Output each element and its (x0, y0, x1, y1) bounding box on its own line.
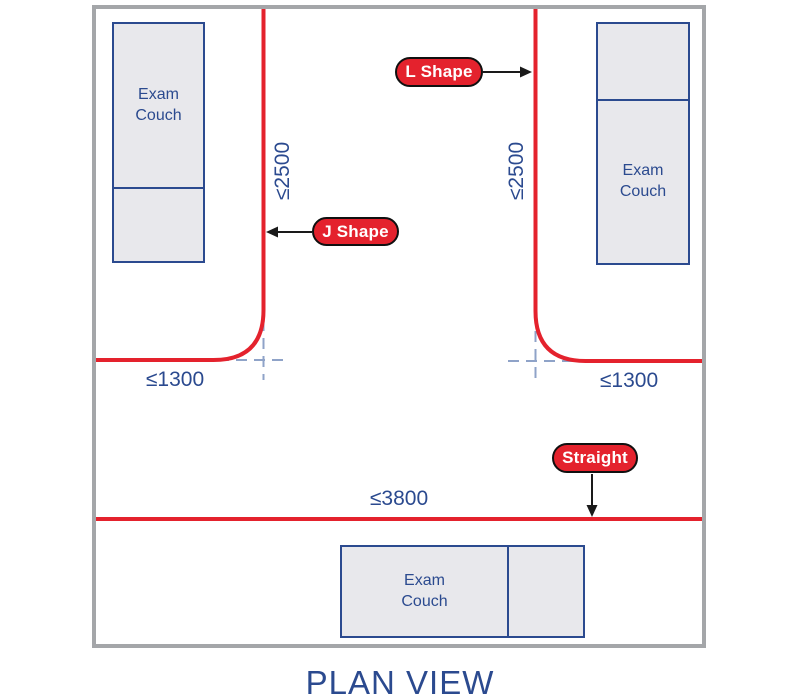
straight-length-dimension: ≤3800 (349, 487, 449, 511)
l-shape-callout: L Shape (395, 57, 483, 87)
l-shape-vertical-dimension: ≤2500 (505, 111, 529, 231)
j-shape-vertical-dimension: ≤2500 (271, 111, 295, 231)
couch-section-divider (507, 547, 509, 636)
exam-couch-label: Exam Couch (342, 547, 507, 636)
page-title: PLAN VIEW (0, 664, 800, 700)
l-shape-arrowhead-icon (520, 67, 532, 78)
j-shape-callout: J Shape (312, 217, 399, 246)
straight-callout-label: Straight (562, 448, 628, 468)
exam-couch-bottom: Exam Couch (340, 545, 585, 638)
curtain-track-plan-view: Exam Couch Exam Couch Exam Couch L Shape… (0, 0, 800, 700)
exam-couch-label: Exam Couch (598, 101, 688, 263)
exam-couch-top-right: Exam Couch (596, 22, 690, 265)
l-shape-callout-label: L Shape (405, 62, 472, 82)
l-shape-horizontal-dimension: ≤1300 (579, 369, 679, 393)
exam-couch-top-left: Exam Couch (112, 22, 205, 263)
j-shape-callout-label: J Shape (322, 222, 389, 242)
straight-arrowhead-icon (587, 505, 598, 517)
straight-callout: Straight (552, 443, 638, 473)
exam-couch-label: Exam Couch (114, 24, 203, 187)
j-shape-horizontal-dimension: ≤1300 (125, 368, 225, 392)
couch-section-divider (114, 187, 203, 189)
